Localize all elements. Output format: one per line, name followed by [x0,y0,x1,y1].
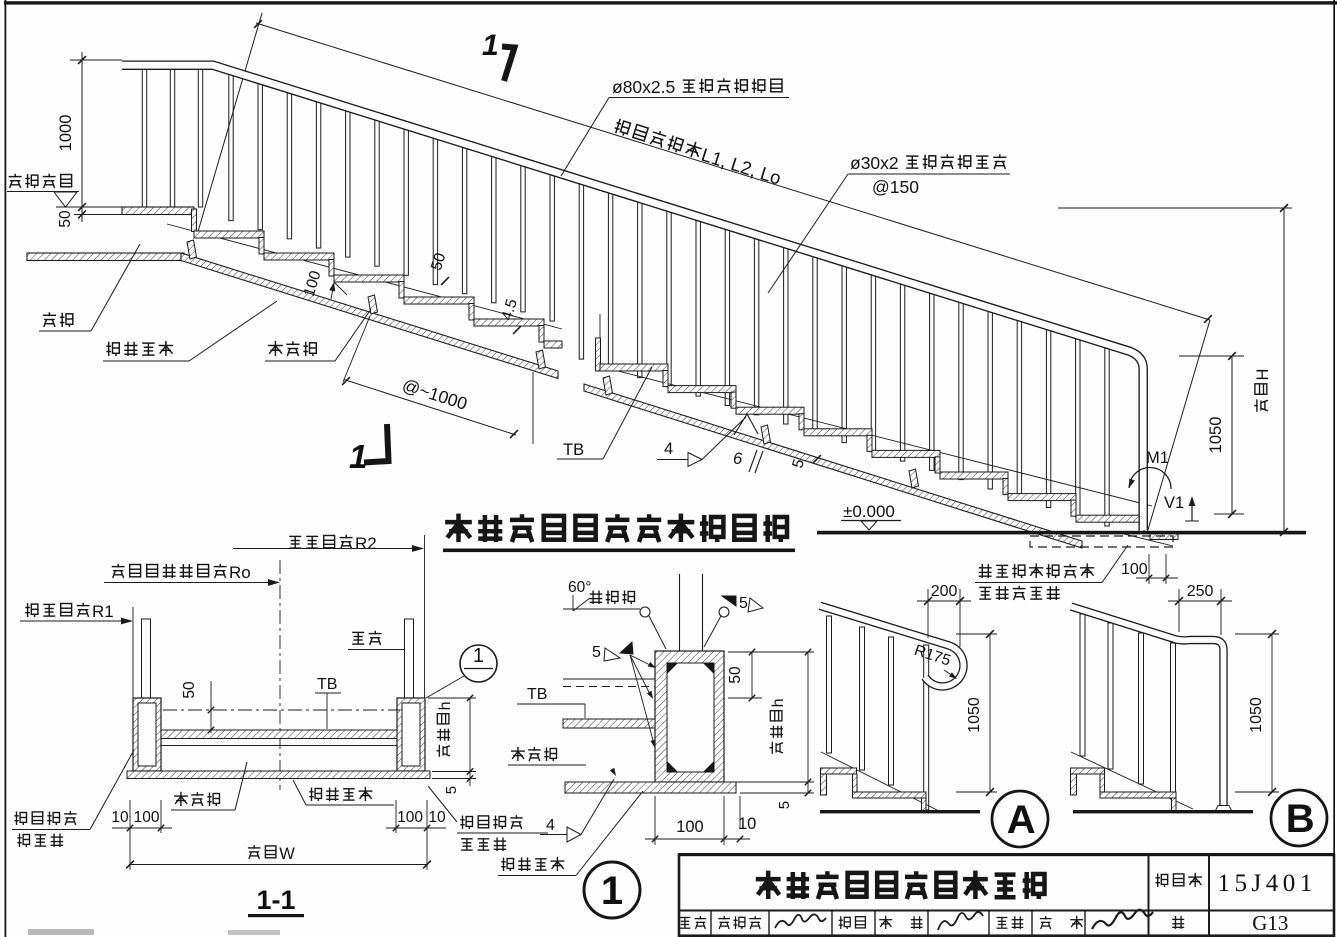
svg-text:@150: @150 [872,177,919,197]
svg-text:10: 10 [738,815,756,833]
svg-text:1: 1 [482,29,499,62]
svg-text:M1: M1 [1146,449,1169,467]
svg-text:100: 100 [676,818,704,836]
svg-text:50: 50 [57,210,74,228]
svg-text:5: 5 [592,644,601,661]
svg-text:250: 250 [1187,583,1214,600]
svg-text:G13: G13 [1252,911,1288,935]
svg-text:TB: TB [527,686,547,703]
svg-text:1: 1 [473,645,484,667]
svg-text:W: W [279,845,295,863]
svg-text:6: 6 [733,450,743,468]
svg-text:ø80x2.5: ø80x2.5 [612,77,675,97]
svg-text:R1: R1 [92,602,114,621]
svg-text:100: 100 [1121,561,1148,578]
svg-text:±0.000: ±0.000 [843,502,895,521]
svg-text:15J401: 15J401 [1218,870,1317,897]
svg-text:V1: V1 [1164,494,1184,512]
svg-text:Ro: Ro [229,563,251,582]
svg-text:TB: TB [563,441,584,459]
svg-text:R2: R2 [355,534,377,553]
svg-text:5: 5 [776,801,793,809]
svg-text:10: 10 [428,809,446,826]
svg-text:h: h [437,701,454,710]
svg-text:1-1: 1-1 [257,885,296,915]
svg-text:A: A [1007,798,1036,842]
svg-text:H: H [1254,369,1272,381]
svg-text:50: 50 [727,666,744,684]
svg-text:ø30x2: ø30x2 [850,153,899,173]
svg-text:200: 200 [931,583,958,600]
svg-text:1050: 1050 [1207,417,1225,454]
svg-text:5: 5 [739,595,748,612]
svg-text:4: 4 [664,440,673,458]
svg-text:100: 100 [397,809,423,826]
svg-text:5: 5 [443,786,460,794]
svg-text:1: 1 [349,438,367,475]
svg-text:50: 50 [181,681,198,699]
svg-text:1: 1 [601,869,623,913]
svg-text:10: 10 [111,809,129,826]
svg-text:1000: 1000 [57,115,75,152]
svg-text:B: B [1286,797,1315,841]
svg-text:100: 100 [134,809,160,826]
svg-text:4: 4 [546,817,555,834]
svg-text:1050: 1050 [966,697,983,733]
svg-text:1050: 1050 [1248,697,1265,733]
svg-text:60°: 60° [568,579,591,596]
svg-text:TB: TB [317,676,337,693]
svg-text:h: h [770,698,787,707]
